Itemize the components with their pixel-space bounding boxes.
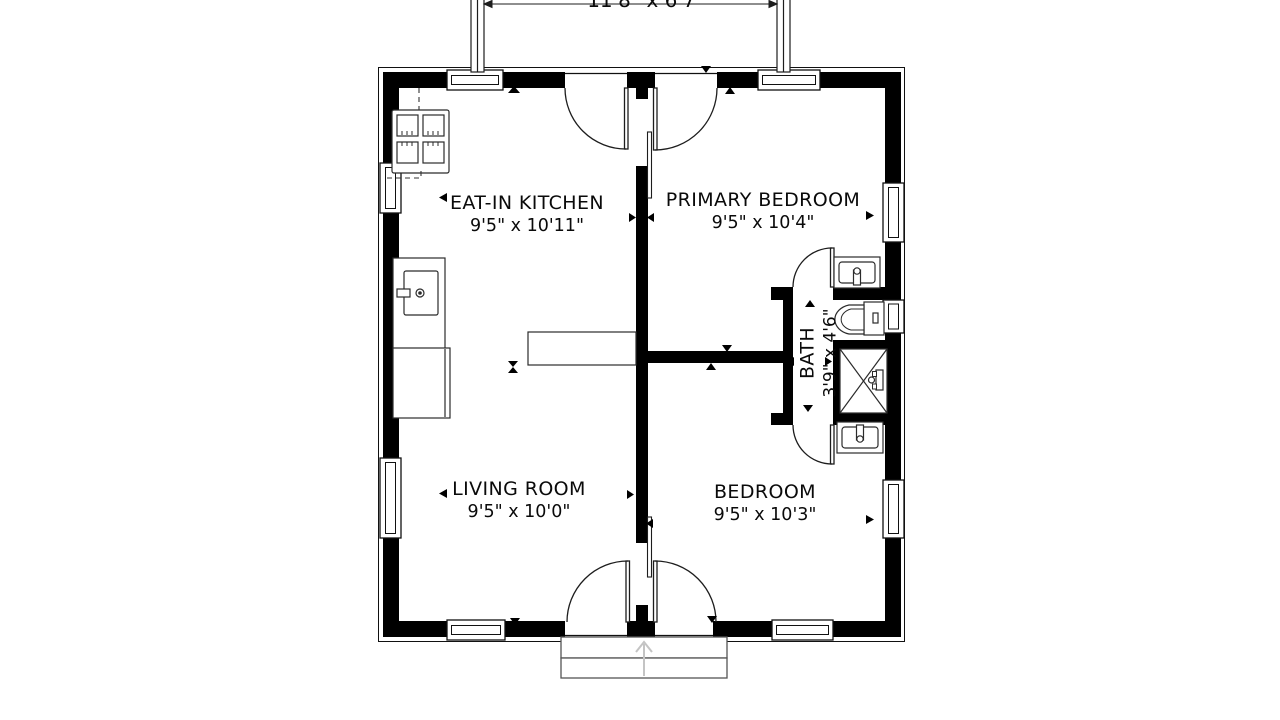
vanity-sink-bedroom-icon	[837, 422, 883, 453]
vanity-sink-primary-icon	[834, 257, 880, 288]
floor-plan: 11'8" x 6'7" EAT-IN KITCHEN 9'5" x 10'11…	[0, 0, 1280, 720]
room-label-bath: BATH 3'9" x 4'6"	[797, 308, 840, 397]
room-label-living-room: LIVING ROOM 9'5" x 10'0"	[452, 478, 586, 523]
bath-door-opening-bottom	[793, 413, 833, 425]
stove-icon	[392, 110, 449, 173]
floor-plan-drawing	[0, 0, 1280, 720]
door-kitchen-entry	[565, 88, 628, 149]
toilet-icon	[835, 302, 884, 335]
room-dims: 9'5" x 10'4"	[666, 213, 860, 234]
window-primary-top	[758, 70, 820, 90]
room-name: PRIMARY BEDROOM	[666, 189, 860, 211]
room-name: LIVING ROOM	[452, 478, 586, 500]
door-bedroom-entry	[654, 561, 717, 622]
room-dims: 3'9" x 4'6"	[821, 308, 841, 397]
room-label-bedroom: BEDROOM 9'5" x 10'3"	[714, 481, 817, 526]
door-living-entry	[567, 561, 630, 622]
room-label-kitchen: EAT-IN KITCHEN 9'5" x 10'11"	[450, 192, 604, 237]
window-bedroom-bottom	[772, 620, 833, 640]
door-bath-bedroom	[793, 425, 834, 464]
room-label-primary-bedroom: PRIMARY BEDROOM 9'5" x 10'4"	[666, 189, 860, 234]
window-living-bottom	[447, 620, 505, 640]
door-primary-entry	[654, 88, 718, 150]
refrigerator-icon	[393, 348, 450, 418]
room-dims: 9'5" x 10'11"	[450, 216, 604, 237]
room-dims: 9'5" x 10'0"	[452, 502, 586, 523]
room-name: BATH	[797, 308, 819, 397]
door-kitchen-primary	[648, 132, 652, 198]
window-kitchen-top	[447, 70, 503, 90]
room-name: BEDROOM	[714, 481, 817, 503]
kitchen-sink-icon	[393, 258, 445, 350]
window-bedroom-right	[883, 480, 904, 538]
bath-door-opening-top	[793, 287, 833, 300]
door-bath-primary	[793, 248, 834, 287]
window-bath-right	[883, 300, 904, 333]
window-living-left	[380, 458, 401, 538]
room-dims: 9'5" x 10'3"	[714, 505, 817, 526]
room-name: EAT-IN KITCHEN	[450, 192, 604, 214]
window-primary-right	[883, 183, 904, 242]
deck-dimension-label: 11'8" x 6'7"	[587, 0, 705, 12]
shower-icon	[840, 349, 887, 413]
kitchen-peninsula	[528, 332, 636, 365]
